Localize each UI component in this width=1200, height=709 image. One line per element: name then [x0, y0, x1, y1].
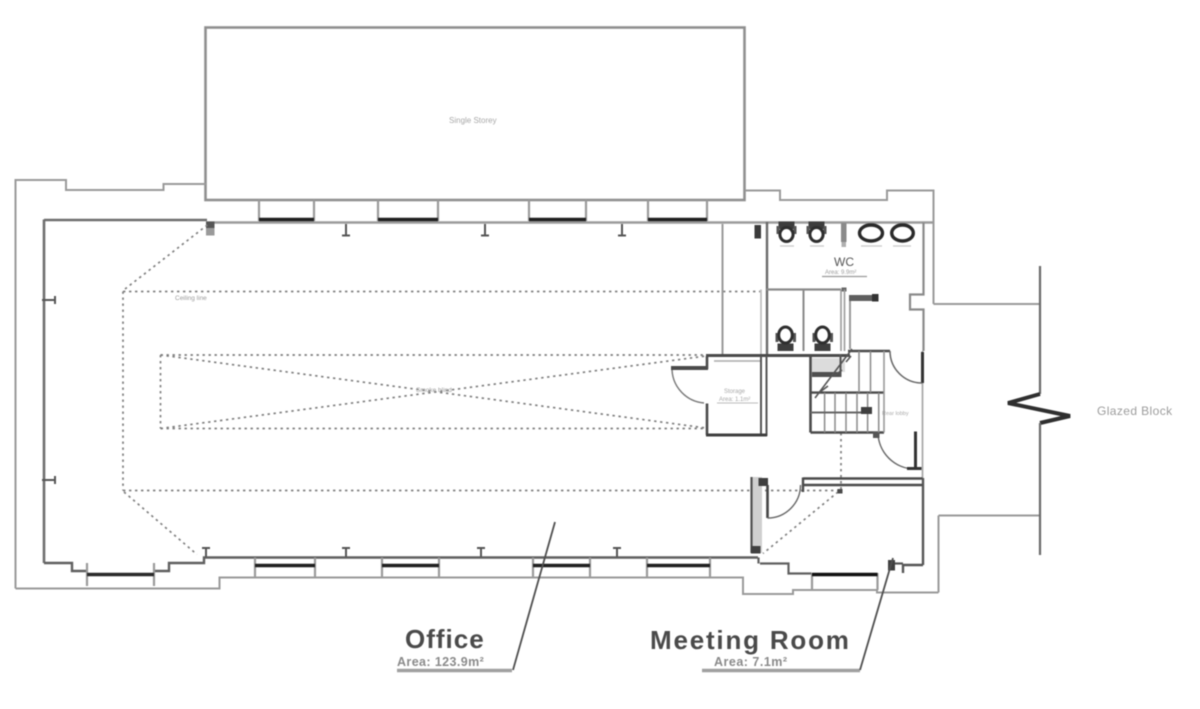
svg-text:Area: 7.1m²: Area: 7.1m²	[714, 655, 788, 669]
svg-text:Storage: Storage	[724, 389, 746, 395]
svg-text:Office: Office	[405, 624, 485, 654]
svg-text:Rear lobby: Rear lobby	[882, 411, 909, 417]
svg-text:Meeting Room: Meeting Room	[650, 625, 851, 655]
svg-text:Glazed Block: Glazed Block	[1097, 404, 1173, 418]
svg-text:Area: 9.9m²: Area: 9.9m²	[825, 270, 856, 276]
svg-text:Ceiling line: Ceiling line	[175, 295, 207, 302]
svg-text:WC: WC	[834, 255, 854, 269]
svg-text:Single Storey: Single Storey	[449, 116, 497, 125]
svg-text:Area: 123.9m²: Area: 123.9m²	[397, 655, 484, 669]
svg-text:Area: 1.1m²: Area: 1.1m²	[719, 397, 750, 403]
svg-text:Smoke blind: Smoke blind	[416, 387, 452, 394]
